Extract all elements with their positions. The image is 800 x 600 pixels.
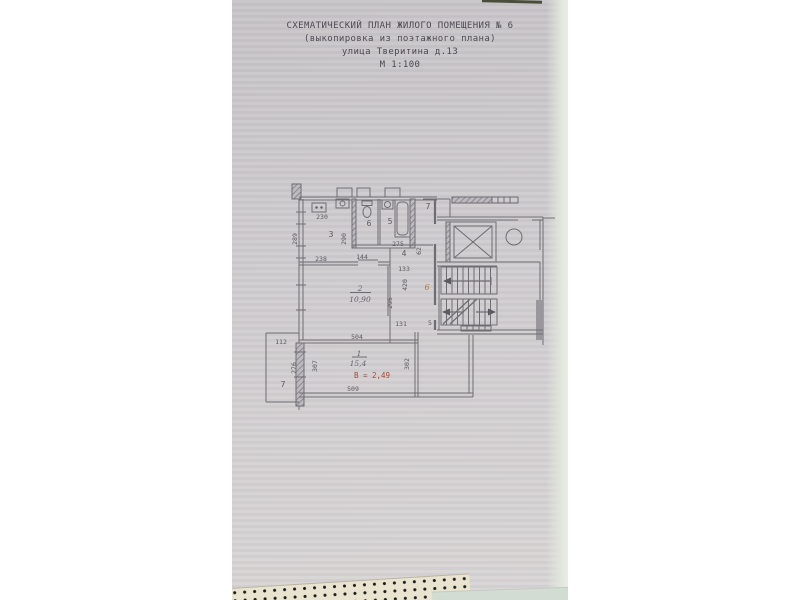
vent-box — [385, 188, 400, 197]
label-room1-right: 302 — [403, 358, 411, 370]
stove-icon — [312, 203, 326, 212]
plan-walls — [266, 184, 555, 410]
label-room1-number: 1 — [357, 349, 362, 358]
vent-box — [357, 188, 370, 197]
label-room1-area: 15,4 — [350, 359, 367, 368]
label-door-width: 131 — [395, 320, 407, 328]
label-balcony-width: 112 — [275, 338, 287, 346]
floor-plan-svg: 230 3 238 289 290 6 5 275 144 4 62 133 4… — [255, 180, 555, 420]
label-kitchen-right: 290 — [340, 233, 348, 245]
duct-strip — [452, 197, 492, 203]
label-hall-side: 62 — [415, 247, 423, 255]
label-hall-width: 144 — [356, 253, 368, 261]
label-bath-length: 275 — [392, 240, 404, 248]
label-room1-left: 307 — [311, 360, 319, 372]
toilet-icon — [363, 207, 371, 218]
screenshot: СХЕМАТИЧЕСКИЙ ПЛАН ЖИЛОГО ПОМЕЩЕНИЯ № 6 … — [0, 0, 800, 600]
label-wc-number: 6 — [367, 219, 372, 228]
header-title: СХЕМАТИЧЕСКИЙ ПЛАН ЖИЛОГО ПОМЕЩЕНИЯ № 6 — [232, 20, 568, 33]
label-bath-number: 5 — [388, 217, 393, 226]
label-room1-bottom: 509 — [347, 385, 359, 393]
label-hall-lower: 133 — [398, 265, 410, 273]
label-floor-mark: 6 — [424, 283, 429, 292]
photographed-document: СХЕМАТИЧЕСКИЙ ПЛАН ЖИЛОГО ПОМЕЩЕНИЯ № 6 … — [232, 0, 568, 600]
garbage-chute — [506, 229, 522, 245]
toilet-tank-icon — [362, 201, 372, 206]
label-kitchen-number: 3 — [329, 230, 334, 239]
label-hall-height: 420 — [401, 279, 409, 291]
header-subtitle: (выкопировка из поэтажного плана) — [232, 33, 568, 46]
stair-arrow-right — [488, 309, 496, 316]
label-balcony-depth: 276 — [290, 362, 298, 374]
vent-box — [337, 188, 352, 197]
stair-flight-lower — [441, 299, 497, 325]
label-corridor-number: 7 — [426, 202, 431, 211]
label-kitchen-bottom: 238 — [315, 255, 327, 263]
stair-flight-upper — [441, 267, 497, 294]
document-header: СХЕМАТИЧЕСКИЙ ПЛАН ЖИЛОГО ПОМЕЩЕНИЯ № 6 … — [232, 20, 568, 72]
label-door-mark: 5 — [428, 319, 432, 327]
label-room2-bottom: 504 — [351, 333, 363, 341]
header-address: улица Тверитина д.13 — [232, 46, 568, 59]
label-balcony-number: 7 — [281, 380, 286, 389]
label-room1-height: В = 2,49 — [354, 371, 390, 380]
header-scale: М 1:100 — [232, 59, 568, 72]
label-room2-area: 10,90 — [349, 295, 371, 304]
label-hall-number: 4 — [402, 249, 407, 258]
label-room2-depth: 295 — [386, 297, 394, 309]
label-kitchen-width: 230 — [316, 213, 328, 221]
label-room2-number: 2 — [357, 284, 363, 293]
label-kitchen-left: 289 — [291, 233, 299, 245]
